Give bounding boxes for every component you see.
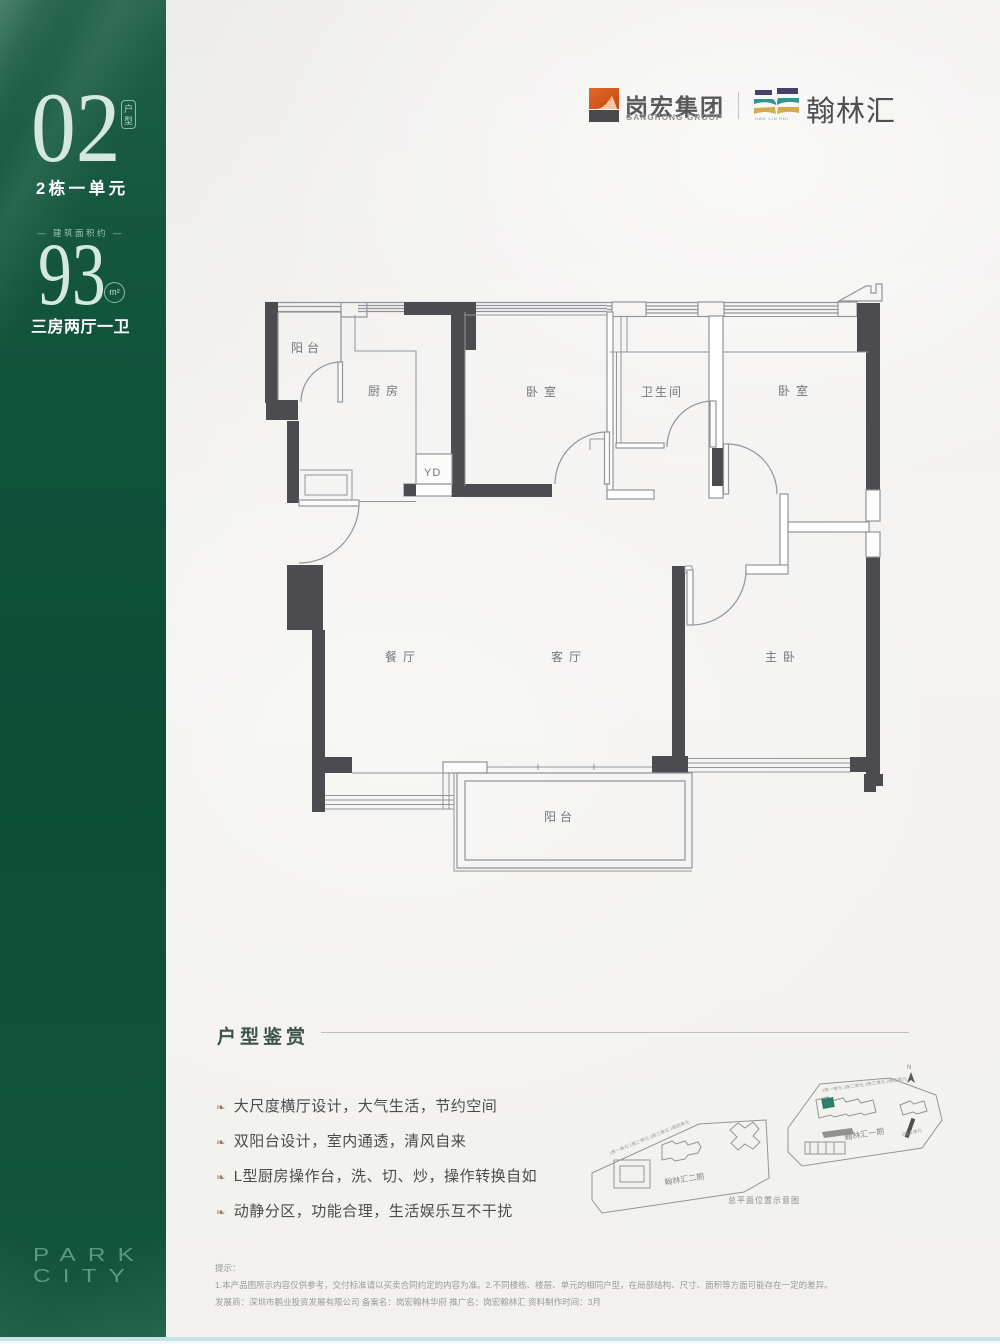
svg-text:卧室: 卧室 [526, 384, 562, 399]
svg-text:客厅: 客厅 [551, 649, 587, 664]
svg-text:翰林汇一期: 翰林汇一期 [844, 1126, 885, 1142]
svg-text:YD: YD [424, 467, 441, 479]
svg-text:1栋一单元 1栋二单元 1栋三单元 1栋四单元: 1栋一单元 1栋二单元 1栋三单元 1栋四单元 [608, 1118, 691, 1157]
svg-text:总平面位置示意图: 总平面位置示意图 [728, 1195, 800, 1205]
svg-text:卧室: 卧室 [778, 383, 814, 398]
svg-text:2栋一单元 2栋二单元 2栋三单元 2栋四单元: 2栋一单元 2栋二单元 2栋三单元 2栋四单元 [821, 1075, 907, 1094]
svg-text:厨房: 厨房 [368, 383, 404, 398]
svg-text:餐厅: 餐厅 [385, 649, 421, 664]
svg-text:阳台: 阳台 [544, 809, 576, 824]
svg-text:主卧: 主卧 [765, 650, 801, 664]
svg-text:翰林汇二期: 翰林汇二期 [664, 1171, 705, 1187]
svg-text:卫生间: 卫生间 [641, 385, 683, 399]
svg-text:N: N [907, 1065, 911, 1071]
svg-text:阳台: 阳台 [291, 340, 323, 355]
